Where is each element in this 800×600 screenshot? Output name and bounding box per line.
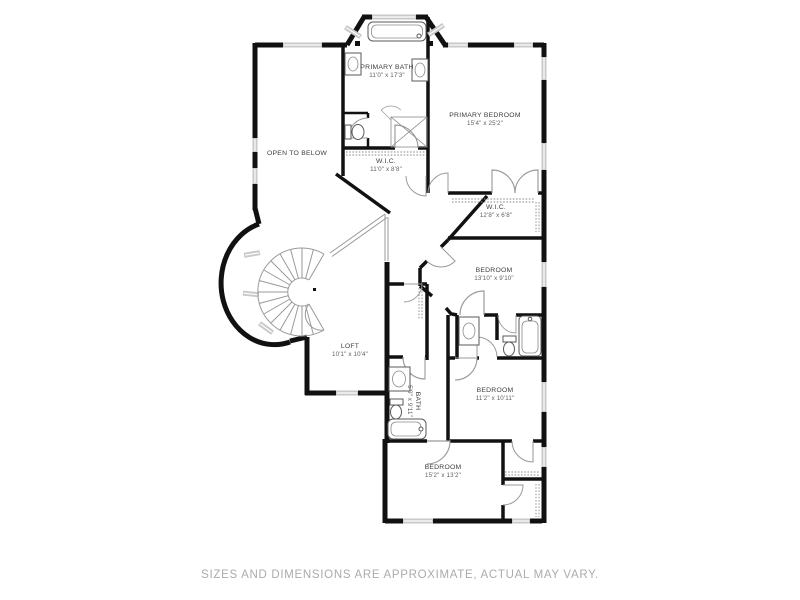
door-wic-secondary-left <box>492 170 515 193</box>
closet-rods <box>346 152 540 517</box>
toilet-jack-jill <box>503 336 516 356</box>
room-label-wic-secondary: W.I.C. <box>486 204 506 211</box>
door-bedroom-2 <box>427 247 455 275</box>
toilet-primary <box>345 125 364 140</box>
door-wic-secondary-right <box>515 170 538 193</box>
door-primary-bedroom <box>428 173 448 193</box>
room-label-open-to-below: OPEN TO BELOW <box>267 150 327 157</box>
bathtub-jack-jill <box>519 316 541 356</box>
spiral-staircase <box>258 248 324 336</box>
door-bedroom-4 <box>427 441 450 464</box>
floor-plan-page: PRIMARY BATH 11'0" x 17'3" PRIMARY BEDRO… <box>0 0 800 600</box>
door-toilet-compartment <box>498 315 516 333</box>
room-label-hall-bath: BATH <box>414 392 421 411</box>
door-closet-lower <box>503 485 523 505</box>
bathtub-primary <box>368 22 426 41</box>
room-dims-primary-bedroom: 15'4" x 25'2" <box>467 120 503 127</box>
sink-primary-left <box>345 53 361 75</box>
room-dims-primary-bath: 11'0" x 17'3" <box>369 72 404 79</box>
door-bedroom-3 <box>455 358 477 380</box>
vanity-jack-jill <box>459 317 479 345</box>
door-linen-closet <box>404 284 422 302</box>
toilet-hall-bath <box>390 399 403 419</box>
door-jack-jill-from-bedroom-2 <box>460 291 484 315</box>
room-dims-wic-secondary: 12'8" x 6'8" <box>480 212 512 219</box>
room-label-primary-bedroom: PRIMARY BEDROOM <box>449 112 521 119</box>
room-label-bedroom-4: BEDROOM <box>425 464 462 471</box>
room-label-bedroom-2: BEDROOM <box>476 267 513 274</box>
door-closet-upper <box>512 441 533 462</box>
fixtures <box>345 22 541 439</box>
room-label-primary-bath: PRIMARY BATH <box>360 64 413 71</box>
room-dims-wic-primary: 11'0" x 8'8" <box>370 166 402 173</box>
room-label-bedroom-3: BEDROOM <box>477 387 514 394</box>
door-wic-primary <box>406 176 426 196</box>
room-dims-bedroom-2: 13'10" x 9'10" <box>474 275 513 282</box>
floor-plan-drawing: PRIMARY BATH 11'0" x 17'3" PRIMARY BEDRO… <box>0 0 800 600</box>
room-label-loft: LOFT <box>341 343 359 350</box>
room-label-wic-primary: W.I.C. <box>376 158 396 165</box>
shower-primary <box>391 117 427 147</box>
room-dims-bedroom-4: 15'2" x 13'2" <box>425 472 461 479</box>
door-jack-jill-from-bedroom-3 <box>477 337 497 357</box>
room-dims-loft: 10'1" x 10'4" <box>332 351 368 358</box>
room-dims-bedroom-3: 11'2" x 10'11" <box>476 395 515 402</box>
sink-primary-right <box>412 59 428 81</box>
open-to-below-railing <box>330 214 388 261</box>
room-dims-hall-bath: 5'0" x 9'11" <box>406 385 413 417</box>
disclaimer-text: SIZES AND DIMENSIONS ARE APPROXIMATE, AC… <box>201 569 599 581</box>
bathtub-hall-bath <box>388 419 426 439</box>
